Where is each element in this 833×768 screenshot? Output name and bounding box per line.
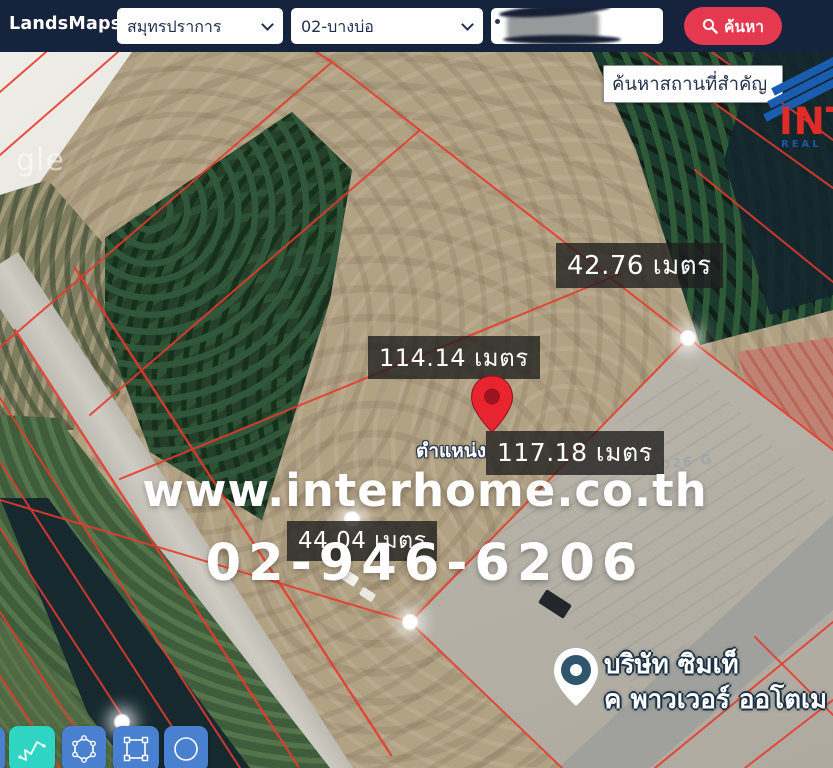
position-marker-label: ตำแหน่ง [416, 436, 486, 466]
province-select-wrap: สมุทรปราการ [117, 8, 283, 44]
polyline-icon [16, 733, 48, 765]
landsmaps-app: 42.76 เมตร 114.14 เมตร 117.18 เมตร 44.04… [0, 0, 833, 768]
district-select[interactable]: 02-บางบ่อ [291, 8, 483, 44]
parcel-number-field-wrap [491, 8, 663, 44]
watermark-phone: 02-946-6206 [30, 534, 820, 593]
parcel-vertex-dot[interactable] [402, 614, 419, 631]
rectangle-icon [120, 733, 152, 765]
parcel-number-input[interactable] [491, 8, 663, 44]
interhome-logo-subtext: REAL [781, 139, 822, 150]
measurement-label: 42.76 เมตร [556, 243, 723, 288]
interhome-logo-text: INT [779, 100, 833, 143]
search-button-label: ค้นหา [724, 14, 764, 39]
search-icon [702, 18, 718, 34]
app-brand: LandsMaps [9, 14, 121, 34]
draw-circle-button[interactable] [164, 726, 208, 768]
measurement-label: 114.14 เมตร [368, 336, 540, 379]
draw-polygon-button[interactable] [62, 726, 106, 768]
polygon-icon [68, 733, 100, 765]
district-select-wrap: 02-บางบ่อ [291, 8, 483, 44]
watermark-website: www.interhome.co.th [30, 464, 820, 517]
poi-pin-icon[interactable] [552, 646, 600, 708]
parcel-vertex-dot[interactable] [680, 330, 697, 347]
poi-name-line2: ค พาวเวอร์ ออโตเม [604, 679, 827, 720]
poi-search-input[interactable] [604, 66, 782, 102]
draw-polyline-button[interactable] [9, 726, 55, 768]
poi-search-box[interactable] [603, 65, 783, 103]
circle-icon [170, 733, 202, 765]
google-watermark-partial: gle [16, 143, 65, 178]
top-navbar: LandsMaps สมุทรปราการ 02-บางบ่อ ค้ [0, 0, 833, 52]
province-select[interactable]: สมุทรปราการ [117, 8, 283, 44]
search-button[interactable]: ค้นหา [684, 7, 782, 45]
location-pin-icon[interactable] [469, 375, 515, 433]
partial-tool-button[interactable] [0, 726, 5, 768]
draw-rectangle-button[interactable] [113, 726, 159, 768]
